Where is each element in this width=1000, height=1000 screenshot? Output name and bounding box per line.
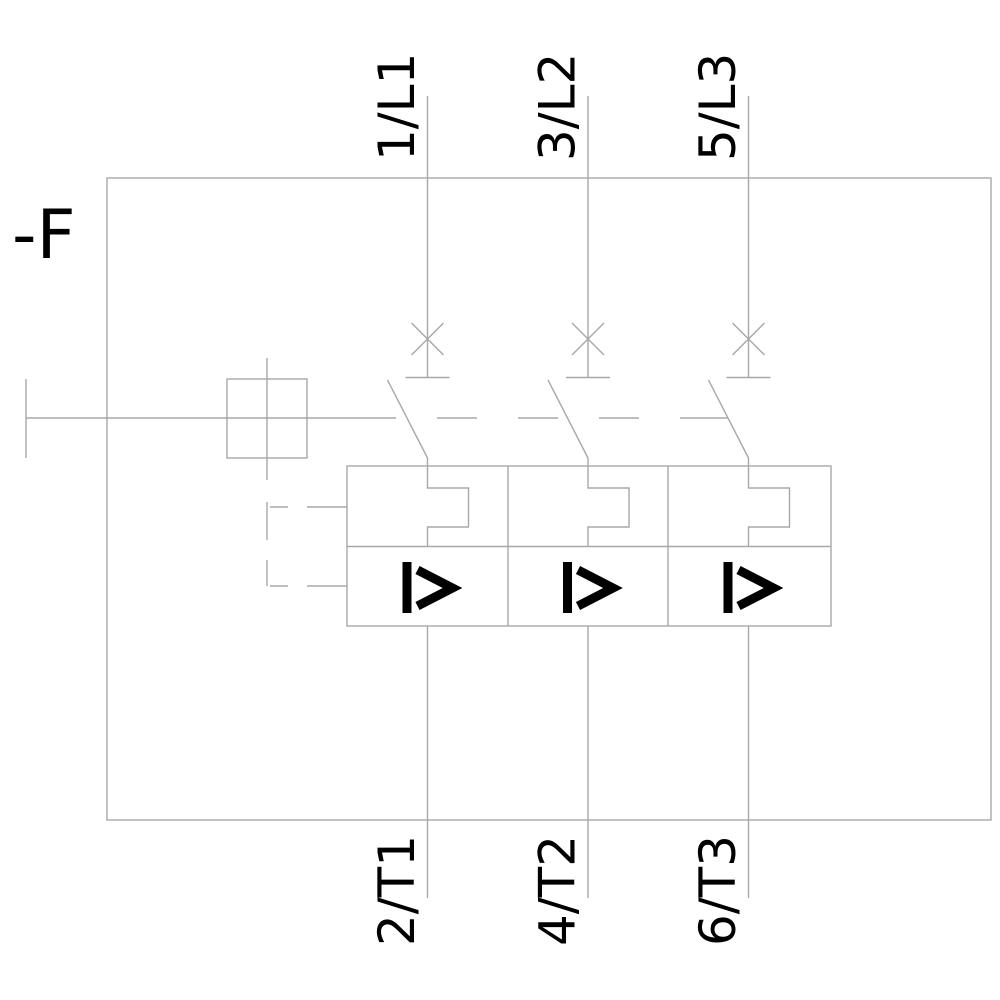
pole-1 — [388, 96, 469, 898]
manual-actuator — [26, 358, 396, 480]
terminal-label-bottom-3: 6/T3 — [689, 835, 747, 946]
pole3-thermal-overload-icon — [749, 466, 790, 547]
pole1-overcurrent-release-icon — [403, 562, 453, 613]
pole3-contact-blade — [709, 380, 749, 458]
pole2-contact-blade — [548, 380, 588, 458]
terminal-label-top-2: 3/L2 — [529, 53, 587, 161]
pole3-overcurrent-release-icon — [724, 562, 774, 613]
pole-2 — [548, 96, 629, 898]
schematic-page: -F — [0, 0, 1000, 1000]
terminal-label-top-3: 5/L3 — [689, 53, 747, 161]
device-designation-label: -F — [12, 196, 76, 275]
pole2-overcurrent-release-icon — [563, 562, 613, 613]
terminal-labels: 1/L1 3/L2 5/L3 2/T1 4/T2 6/T3 — [368, 53, 747, 946]
terminal-label-bottom-1: 2/T1 — [368, 835, 426, 946]
pole2-thermal-overload-icon — [588, 466, 629, 547]
pole-3 — [709, 96, 790, 898]
pole1-thermal-overload-icon — [428, 466, 469, 547]
actuator-trip-coupling-dashed — [267, 502, 347, 586]
terminal-label-bottom-2: 4/T2 — [529, 835, 587, 946]
circuit-breaker-schematic: -F — [0, 0, 1000, 1000]
device-outline-frame — [107, 178, 991, 820]
pole1-contact-blade — [388, 380, 428, 458]
terminal-label-top-1: 1/L1 — [368, 53, 426, 161]
